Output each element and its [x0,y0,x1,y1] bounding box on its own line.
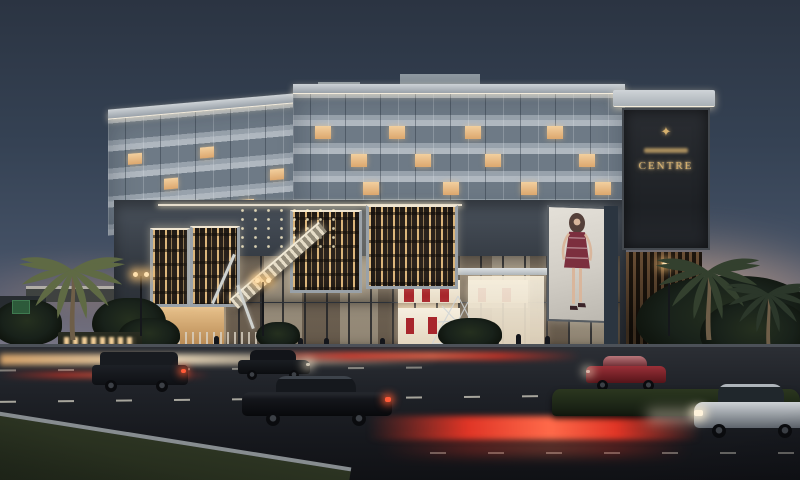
sign-brand-blur-line [644,148,688,153]
car-black-sedan [242,376,392,430]
lit-window [389,126,405,139]
architectural-render-scene: ✦ CENTRE [0,0,800,480]
lit-window [200,146,214,158]
lit-window [485,154,501,167]
street-lamp [140,276,142,336]
lit-window [443,182,459,195]
taillight-trail-reflection [380,442,690,454]
car-dark-suv [92,352,188,394]
lit-window [579,154,595,167]
perforated-light-panel [366,205,458,289]
curb-line [0,344,800,347]
red-clothing-display [406,318,414,334]
escalator-track [229,222,327,309]
lamp-glow [266,278,271,283]
perforated-light-panel [150,228,190,307]
red-clothing-display [404,288,414,302]
palm-tree-right-small [722,248,800,352]
lit-window [164,178,178,190]
panel-light-pattern [369,207,455,286]
fashion-billboard [547,205,607,323]
lit-window [595,182,611,195]
external-escalator [238,212,358,308]
lamp-glow [255,278,260,283]
lit-window [465,126,481,139]
pylon-cap [613,90,715,107]
building-right-wing [293,92,625,216]
right-wing-parapet-light [293,84,625,94]
entrance-canopy [456,268,550,275]
lit-window [270,168,284,180]
lit-window [315,126,331,139]
car-silver [694,384,800,440]
gold-crest-icon: ✦ [624,124,708,140]
lit-window [521,182,537,195]
street-lamp [262,282,264,336]
pylon-sign-text: CENTRE [624,160,708,172]
palm-tree-left [4,212,140,344]
lit-window [415,154,431,167]
lamp-glow [144,272,149,277]
lit-window [363,182,379,195]
lit-window [547,126,563,139]
lit-window [128,153,142,165]
lit-window [351,154,367,167]
billboard-model-graphic [549,207,605,321]
car-red-sedan [586,356,666,392]
panel-light-pattern [153,230,187,304]
